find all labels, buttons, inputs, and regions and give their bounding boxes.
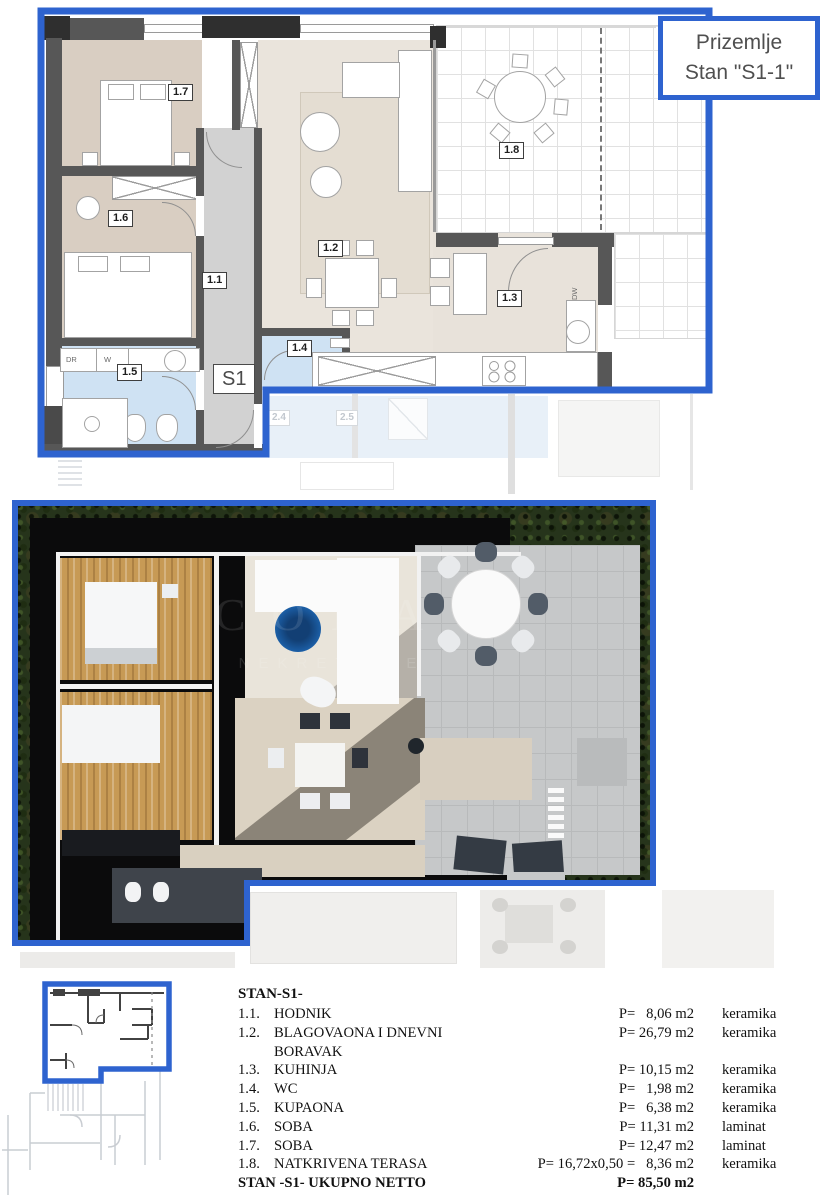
- glass-wall: [433, 40, 436, 232]
- total-material-empty: [694, 1174, 816, 1193]
- room-number: 1.8.: [238, 1155, 274, 1174]
- area-legend: STAN-S1- 1.1. HODNIK P= 8,06 m2 keramika…: [238, 986, 816, 1193]
- room-label-1-6: 1.6: [108, 210, 133, 227]
- room-material: laminat: [694, 1137, 816, 1156]
- terrace-chair: [512, 53, 529, 68]
- sofa-3d: [337, 558, 399, 704]
- room-name: SOBA: [274, 1118, 476, 1137]
- dining-table-3d: [295, 743, 345, 787]
- ghost-render-strip: [12, 886, 774, 974]
- pillow: [120, 256, 150, 272]
- ghost-chair: [492, 898, 508, 912]
- room-label-1-5: 1.5: [117, 364, 142, 381]
- closet: [112, 176, 198, 200]
- stool: [430, 258, 450, 278]
- terrace-table-3d: [451, 569, 521, 639]
- ghost-room: [662, 890, 774, 968]
- wall: [46, 38, 62, 366]
- washer-label: W: [104, 355, 111, 364]
- sofa-3d: [255, 560, 347, 612]
- dining-chair-3d: [352, 748, 368, 768]
- chair: [381, 278, 397, 298]
- wc-sink: [330, 338, 350, 348]
- room-number: 1.4.: [238, 1080, 274, 1099]
- unit-label-s1: S1: [213, 364, 255, 394]
- nightstand-3d: [162, 584, 178, 598]
- wall: [58, 338, 198, 346]
- ghost-plan-strip: 2.4 2.5: [38, 394, 718, 496]
- dining-chair-3d: [330, 793, 350, 809]
- ghost-chair: [560, 940, 576, 954]
- room-material: keramika: [694, 1155, 816, 1174]
- sofa: [398, 50, 432, 192]
- room-label-1-8: 1.8: [499, 142, 524, 159]
- wall: [258, 328, 350, 336]
- window: [498, 237, 554, 245]
- ghost-shower: [388, 398, 428, 440]
- terrace-table: [494, 71, 546, 123]
- room-material: keramika: [694, 1080, 816, 1099]
- nightstand: [82, 152, 98, 166]
- room-number: 1.7.: [238, 1137, 274, 1156]
- ghost-wall: [508, 394, 515, 494]
- wall: [58, 166, 202, 176]
- dishwasher-label: DW: [570, 288, 579, 301]
- round-rug-3d: [275, 606, 321, 652]
- wall: [552, 233, 614, 247]
- concrete-pad-3d: [577, 738, 627, 786]
- room-name: SOBA: [274, 1137, 476, 1156]
- room-name: HODNIK: [274, 1005, 476, 1024]
- bed-foot-3d: [85, 648, 157, 664]
- stove: [482, 356, 526, 386]
- kitchen-sink: [566, 320, 590, 344]
- pillow: [108, 84, 134, 100]
- room-label-1-3: 1.3: [497, 290, 522, 307]
- room-name: KUHINJA: [274, 1061, 476, 1080]
- kitchen-island: [453, 253, 487, 315]
- minimap-wall-stub: [53, 989, 65, 996]
- terrace-chair-3d: [424, 593, 444, 615]
- legend-row: 1.6. SOBA P= 11,31 m2 laminat: [238, 1118, 816, 1137]
- room-number: 1.3.: [238, 1061, 274, 1080]
- legend-total-row: STAN -S1- UKUPNO NETTO P= 85,50 m2: [238, 1174, 816, 1193]
- terrace-chair-3d: [475, 646, 497, 666]
- room-area: P= 1,98 m2: [476, 1080, 694, 1099]
- room-name: KUPAONA: [274, 1099, 476, 1118]
- dining-chair-3d: [300, 793, 320, 809]
- legend-row: 1.2. BLAGOVAONA I DNEVNI BORAVAK P= 26,7…: [238, 1024, 816, 1062]
- legend-row: 1.4. WC P= 1,98 m2 keramika: [238, 1080, 816, 1099]
- sun-lounger-3d: [453, 835, 506, 874]
- room-name: NATKRIVENA TERASA: [274, 1155, 476, 1174]
- room-material: laminat: [694, 1118, 816, 1137]
- terrace-edge-dashed: [600, 28, 602, 230]
- total-area: P= 85,50 m2: [476, 1174, 694, 1193]
- title-line-2: Stan "S1-1": [685, 58, 793, 88]
- room-area: P= 12,47 m2: [476, 1137, 694, 1156]
- armchair: [310, 166, 342, 198]
- wall: [598, 352, 612, 392]
- room-material: keramika: [694, 1099, 816, 1118]
- concrete-pad-3d: [507, 872, 565, 884]
- total-label: STAN -S1- UKUPNO NETTO: [238, 1174, 476, 1193]
- ghost-shape: [20, 952, 235, 968]
- wall-cap: [214, 552, 219, 848]
- wall: [598, 247, 612, 305]
- kitchen-floor-3d: [420, 738, 532, 800]
- minimap-unit-outline: [45, 984, 169, 1081]
- legend-row: 1.3. KUHINJA P= 10,15 m2 keramika: [238, 1061, 816, 1080]
- room-name: BLAGOVAONA I DNEVNI BORAVAK: [274, 1024, 476, 1062]
- ghost-chair: [492, 940, 508, 954]
- legend-heading: STAN-S1-: [238, 986, 816, 1003]
- chair: [356, 240, 374, 256]
- wall: [232, 40, 240, 130]
- ghost-wall: [690, 394, 693, 490]
- render-3d: CODA NEKRETNINE: [12, 500, 656, 946]
- room-area: P= 11,31 m2: [476, 1118, 694, 1137]
- dining-chair-3d: [300, 713, 320, 729]
- ghost-room-label: 2.5: [336, 410, 358, 426]
- room-area: P= 26,79 m2: [476, 1024, 694, 1062]
- room-area: P= 6,38 m2: [476, 1099, 694, 1118]
- wall: [436, 233, 498, 247]
- room-name: WC: [274, 1080, 476, 1099]
- plant-3d: [408, 738, 424, 754]
- ghost-table: [505, 905, 553, 943]
- terrace-chair-3d: [528, 593, 548, 615]
- pillow: [78, 256, 108, 272]
- dryer-label: DR: [66, 355, 77, 364]
- floor-plan-page: DR W DW: [0, 0, 823, 1200]
- room-number: 1.5.: [238, 1099, 274, 1118]
- nightstand: [174, 152, 190, 166]
- wall: [202, 16, 300, 38]
- room-label-1-2: 1.2: [318, 240, 343, 257]
- dining-chair-3d: [330, 713, 350, 729]
- sofa: [342, 62, 400, 98]
- title-box: Prizemlje Stan "S1-1": [658, 16, 820, 100]
- bath-sink: [164, 350, 186, 372]
- pergola-louvers-3d: [548, 788, 564, 842]
- wall-line: [446, 25, 656, 28]
- room-number: 1.2.: [238, 1024, 274, 1062]
- chair: [332, 310, 350, 326]
- room-area: P= 10,15 m2: [476, 1061, 694, 1080]
- room-material: keramika: [694, 1005, 816, 1024]
- closet: [240, 42, 258, 128]
- terrace-chair: [553, 98, 568, 115]
- legend-row: 1.8. NATKRIVENA TERASA P= 16,72x0,50 = 8…: [238, 1155, 816, 1174]
- title-line-1: Prizemlje: [696, 28, 782, 58]
- room-area: P= 16,72x0,50 = 8,36 m2: [476, 1155, 694, 1174]
- minimap-ghost-lines: [2, 1069, 160, 1195]
- kitchen-cabinet: [318, 356, 436, 386]
- dining-table: [325, 258, 379, 308]
- ghost-chair: [560, 898, 576, 912]
- room-label-1-4: 1.4: [287, 340, 312, 357]
- room-area: P= 8,06 m2: [476, 1005, 694, 1024]
- ghost-room-label: 2.4: [268, 410, 290, 426]
- burner: [489, 361, 499, 371]
- legend-row: 1.7. SOBA P= 12,47 m2 laminat: [238, 1137, 816, 1156]
- glass-edge: [417, 556, 421, 696]
- terrace-deck-side: [614, 233, 710, 339]
- door-gap: [196, 196, 204, 236]
- window: [300, 24, 434, 33]
- coffee-table: [300, 112, 340, 152]
- minimap-walls: [50, 993, 164, 1069]
- chair: [356, 310, 374, 326]
- ghost-wall: [352, 394, 358, 458]
- room-number: 1.1.: [238, 1005, 274, 1024]
- room-label-1-7: 1.7: [168, 84, 193, 101]
- terrace-paving: [415, 545, 640, 875]
- dining-chair-3d: [268, 748, 284, 768]
- ghost-closet: [300, 462, 394, 490]
- room-number: 1.6.: [238, 1118, 274, 1137]
- minimap-hatch: [48, 1084, 83, 1111]
- ghost-room: [250, 892, 457, 964]
- wall: [40, 16, 70, 40]
- ghost-ruler: [58, 460, 82, 490]
- bed-3d: [62, 705, 160, 763]
- ghost-bed: [558, 400, 660, 477]
- wardrobe-3d: [62, 830, 180, 856]
- legend-row: 1.5. KUPAONA P= 6,38 m2 keramika: [238, 1099, 816, 1118]
- stool: [430, 286, 450, 306]
- terrace-chair-3d: [475, 542, 497, 562]
- pillow: [140, 84, 166, 100]
- chair: [306, 278, 322, 298]
- counter-divider: [96, 348, 97, 372]
- minimap-door-arcs: [66, 1015, 104, 1068]
- wall-cap: [56, 684, 212, 689]
- room-material: keramika: [694, 1024, 816, 1062]
- key-plan-minimap: [0, 965, 240, 1200]
- window: [144, 24, 204, 33]
- minimap-wall-stub: [78, 989, 100, 996]
- legend-row: 1.1. HODNIK P= 8,06 m2 keramika: [238, 1005, 816, 1024]
- side-table: [76, 196, 100, 220]
- room-material: keramika: [694, 1061, 816, 1080]
- room-label-1-1: 1.1: [202, 272, 227, 289]
